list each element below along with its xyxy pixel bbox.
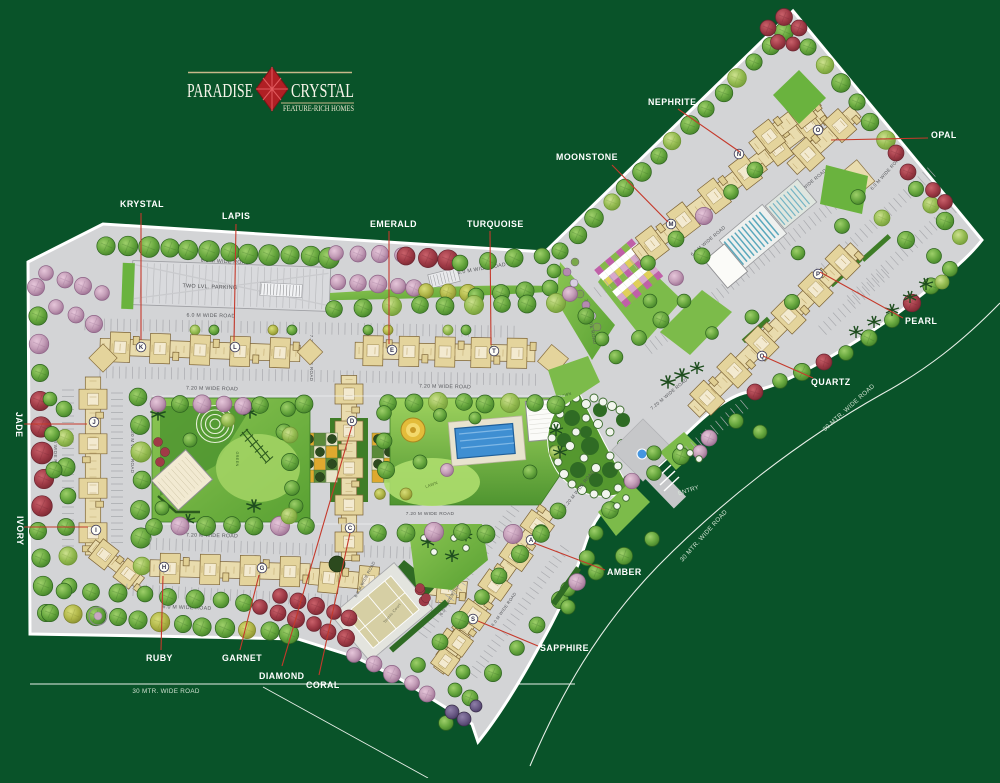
svg-text:KRYSTAL: KRYSTAL [120, 199, 164, 209]
svg-text:E: E [390, 348, 394, 354]
svg-text:L: L [233, 345, 237, 351]
svg-text:PEARL: PEARL [905, 316, 937, 326]
svg-text:T: T [492, 349, 496, 355]
svg-text:QUARTZ: QUARTZ [811, 377, 851, 387]
svg-text:N: N [737, 152, 741, 158]
svg-text:6.0 M WIDE ROAD: 6.0 M WIDE ROAD [187, 313, 236, 320]
svg-text:Q: Q [760, 354, 765, 360]
svg-text:TURQUOISE: TURQUOISE [467, 219, 524, 229]
svg-text:RUBY: RUBY [146, 653, 173, 663]
svg-text:SAPPHIRE: SAPPHIRE [540, 643, 589, 653]
svg-text:D: D [350, 419, 355, 425]
svg-text:PARADISE: PARADISE [187, 80, 253, 102]
svg-text:NEPHRITE: NEPHRITE [648, 97, 696, 107]
svg-text:CORAL: CORAL [306, 680, 340, 690]
svg-text:OPAL: OPAL [931, 130, 957, 140]
svg-text:C: C [348, 526, 353, 532]
svg-text:DIAMOND: DIAMOND [259, 671, 305, 681]
svg-text:AMBER: AMBER [607, 567, 642, 577]
svg-text:MOONSTONE: MOONSTONE [556, 152, 618, 162]
svg-text:O: O [816, 128, 821, 134]
svg-text:P: P [816, 272, 820, 278]
svg-text:CRYSTAL: CRYSTAL [291, 80, 354, 102]
svg-text:JADE: JADE [14, 412, 24, 437]
svg-text:LAPIS: LAPIS [222, 211, 250, 221]
svg-text:EMERALD: EMERALD [370, 219, 417, 229]
svg-text:7.20 M WIDE ROAD: 7.20 M WIDE ROAD [419, 384, 471, 391]
svg-text:GARNET: GARNET [222, 653, 262, 663]
svg-text:7.20 M WIDE ROAD: 7.20 M WIDE ROAD [186, 386, 238, 393]
svg-text:IVORY: IVORY [15, 516, 25, 546]
svg-text:A: A [529, 538, 534, 544]
svg-text:S: S [471, 617, 475, 623]
svg-text:30 MTR. WIDE ROAD: 30 MTR. WIDE ROAD [132, 688, 200, 695]
svg-text:M: M [669, 222, 674, 228]
svg-text:H: H [162, 565, 166, 571]
svg-text:J: J [92, 420, 95, 426]
svg-text:GREEN: GREEN [235, 451, 239, 466]
svg-text:K: K [139, 345, 144, 351]
svg-text:7.20 M WIDE ROAD: 7.20 M WIDE ROAD [406, 511, 455, 517]
svg-text:FEATURE-RICH HOMES: FEATURE-RICH HOMES [283, 104, 354, 113]
svg-text:G: G [260, 566, 265, 572]
